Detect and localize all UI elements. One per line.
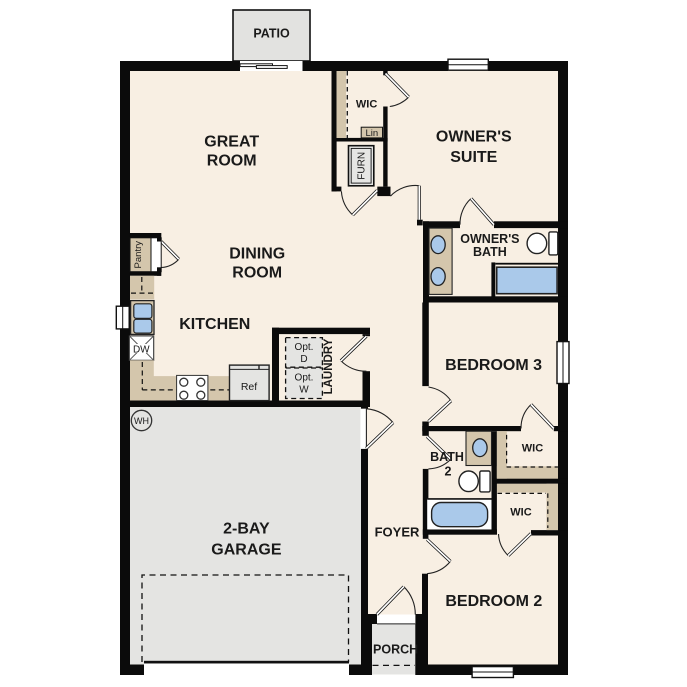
svg-text:FURN: FURN [357, 152, 368, 180]
svg-text:GARAGE: GARAGE [211, 541, 282, 558]
svg-text:PORCH: PORCH [373, 642, 418, 656]
svg-text:Lin: Lin [365, 128, 378, 139]
svg-text:BATH: BATH [473, 245, 507, 259]
svg-text:FOYER: FOYER [375, 525, 420, 540]
svg-text:LAUNDRY: LAUNDRY [323, 338, 335, 394]
svg-text:2: 2 [445, 464, 452, 478]
svg-text:BEDROOM 3: BEDROOM 3 [445, 357, 542, 374]
svg-text:ROOM: ROOM [232, 265, 282, 282]
svg-text:D: D [300, 354, 307, 365]
svg-text:GREAT: GREAT [204, 133, 259, 150]
svg-text:SUITE: SUITE [450, 149, 497, 166]
svg-text:BEDROOM 2: BEDROOM 2 [445, 593, 542, 610]
svg-text:OWNER'S: OWNER'S [436, 129, 512, 146]
svg-text:ROOM: ROOM [207, 153, 257, 170]
svg-text:2-BAY: 2-BAY [223, 520, 270, 537]
svg-text:KITCHEN: KITCHEN [179, 316, 250, 333]
svg-text:BATH: BATH [430, 450, 464, 464]
svg-text:WH: WH [134, 416, 149, 426]
svg-text:W: W [299, 385, 309, 396]
svg-text:Pantry: Pantry [133, 241, 144, 269]
svg-text:WIC: WIC [522, 443, 543, 455]
svg-text:PATIO: PATIO [253, 27, 290, 41]
svg-text:OWNER'S: OWNER'S [460, 232, 519, 246]
svg-text:DINING: DINING [229, 245, 285, 262]
svg-text:Opt.: Opt. [295, 373, 314, 384]
svg-text:Opt.: Opt. [295, 342, 314, 353]
svg-text:Ref: Ref [241, 381, 257, 393]
svg-text:WIC: WIC [510, 506, 531, 518]
svg-text:DW: DW [133, 344, 150, 355]
svg-text:WIC: WIC [356, 99, 377, 111]
